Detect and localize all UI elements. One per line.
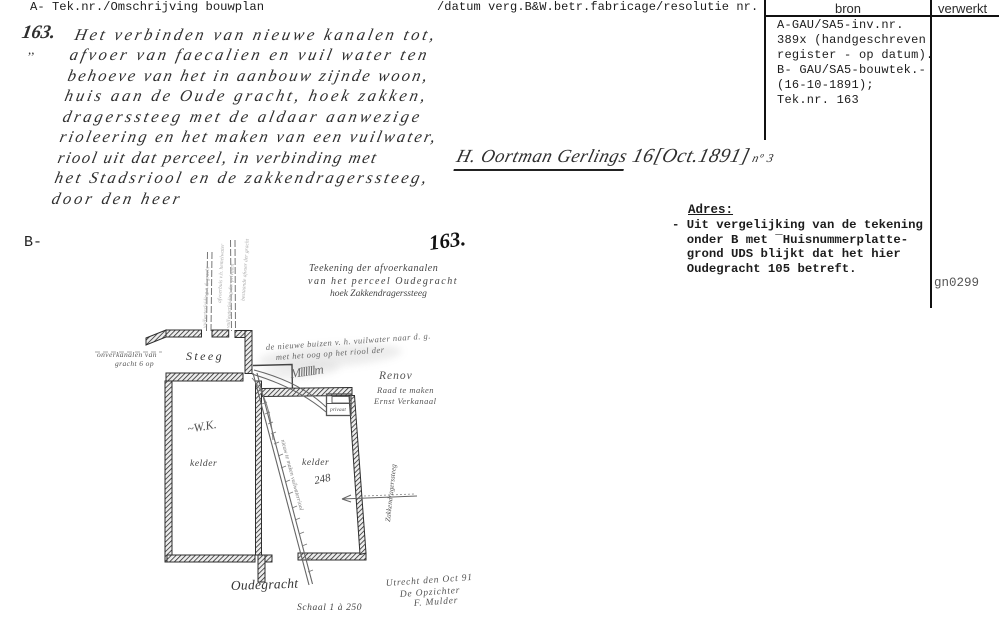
svg-text:vuilwaterleiding der privaten: vuilwaterleiding der privaten [226, 263, 236, 328]
svg-text:privaat: privaat [329, 407, 346, 413]
svg-text:Schaal 1 à 250: Schaal 1 à 250 [297, 603, 362, 613]
svg-text:nieuw te maken vuilwaterriool: nieuw te maken vuilwaterriool [279, 439, 304, 512]
svg-text:Teekening der afvoerkanalen: Teekening der afvoerkanalen [309, 263, 438, 274]
svg-text:onverkanalen van: onverkanalen van [97, 350, 157, 359]
svg-text:F. Mulder: F. Mulder [413, 596, 459, 609]
svg-text:Raad te maken: Raad te maken [376, 385, 434, 395]
svg-text:163.: 163. [427, 226, 467, 255]
svg-text:Ernst Verkanaal: Ernst Verkanaal [373, 396, 437, 406]
svg-text:vuilwaterleiding n.d. gracht: vuilwaterleiding n.d. gracht [202, 266, 211, 328]
svg-text:bestaande afvoer der gracht: bestaande afvoer der gracht [240, 238, 251, 301]
svg-text:van het perceel Oudegracht: van het perceel Oudegracht [308, 276, 458, 287]
svg-text:~W.K.: ~W.K. [186, 417, 217, 436]
svg-text:Oudegracht: Oudegracht [231, 576, 300, 593]
svg-text:Zakkendragerssteeg: Zakkendragerssteeg [384, 463, 398, 522]
svg-text:kelder: kelder [302, 458, 329, 468]
svg-text:kelder: kelder [190, 459, 217, 469]
svg-text:Steeg: Steeg [186, 349, 224, 363]
svg-text:hoek Zakkendragerssteeg: hoek Zakkendragerssteeg [330, 289, 427, 299]
svg-text:afvoerbuis v.h. hemelwater: afvoerbuis v.h. hemelwater [216, 243, 226, 303]
svg-text:gracht 6 op: gracht 6 op [115, 359, 154, 368]
svg-text:B-: B- [24, 234, 42, 251]
svg-text:248: 248 [313, 472, 332, 487]
svg-text:Utrecht den Oct 91: Utrecht den Oct 91 [386, 573, 474, 589]
svg-text:Renov: Renov [378, 370, 413, 382]
